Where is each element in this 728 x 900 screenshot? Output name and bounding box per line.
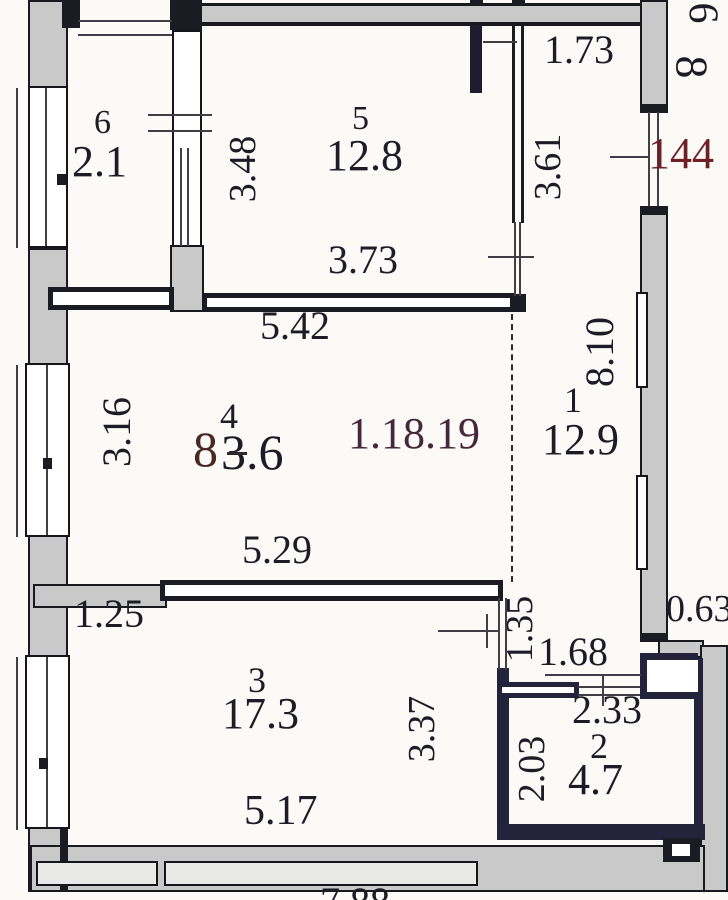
tick-corridor-window [488, 256, 534, 258]
dim-room5-width: 3.73 [328, 240, 398, 280]
dim-room6-wall: 3.48 [224, 126, 262, 212]
dim-left-stub: 1.25 [74, 594, 144, 634]
wall-stub-top-b [512, 0, 525, 5]
dim-corridor: 3.61 [529, 124, 567, 210]
window-corridor-line-b [519, 222, 521, 296]
room6-number: 6 [94, 106, 111, 140]
dim-right-wall: 8.10 [580, 309, 620, 395]
window-room3-mullion [46, 657, 48, 827]
balcony-line-top [16, 88, 18, 248]
door-tick-top [483, 41, 517, 43]
tick-3-48-a [148, 114, 212, 116]
dim-hall-width: 5.42 [260, 306, 330, 346]
column-niche-core [672, 844, 690, 856]
room2-area: 4.7 [568, 758, 623, 802]
wall-niche-corner [640, 653, 698, 699]
wall-corridor-right-line [521, 25, 524, 223]
window-hall-mullion [46, 365, 48, 535]
apartment-number: 144 [648, 132, 714, 176]
dim-right-step: 0.63 [666, 590, 728, 628]
balcony-line-mid [16, 365, 18, 537]
door-panel-right-lower [636, 475, 648, 570]
dim-passage: 1.35 [501, 586, 539, 672]
wall-cap-entry-top [640, 104, 668, 113]
corner-digit-bottom: 8 [669, 56, 715, 79]
wall-corridor-left-line [512, 25, 515, 223]
opening-top-line-b [78, 34, 172, 36]
window-room6-mullion [45, 88, 47, 246]
wall-hall-topleft [48, 287, 174, 310]
window-room3-handle [39, 758, 48, 769]
wall-cap-entry-bottom [640, 206, 668, 215]
door-leaf [470, 25, 482, 93]
window-hall-handle [43, 458, 52, 469]
dim-room3-bottom: 5.17 [244, 790, 318, 832]
date-stamp: 1.18.19 [348, 412, 480, 456]
door-panel-right-upper [636, 292, 648, 388]
dim-bottom-partial: 7.88 [320, 882, 390, 900]
room1-area: 12.9 [542, 418, 619, 462]
dim-hall-window: 3.16 [97, 389, 137, 475]
wall-cap-right-low [640, 633, 668, 642]
tick-1-35-h [438, 630, 500, 632]
window-room6-handle [57, 174, 66, 185]
tick-1-68 [545, 674, 641, 676]
balcony-line-bottom [16, 657, 18, 830]
room6-area: 2.1 [72, 140, 127, 184]
window-corridor-line-a [514, 222, 516, 296]
tick-3-48-b [148, 130, 212, 132]
dim-room2-width: 2.33 [572, 690, 642, 730]
tick-1-35-v [486, 614, 488, 648]
wall-room5-bottom [202, 293, 515, 312]
room3-area: 17.3 [222, 692, 299, 736]
wall-stub-topleft [62, 0, 80, 28]
wall-stub-top-a [470, 0, 483, 5]
total-area-overlay-digit: 8 [193, 424, 218, 474]
window-bottom-left [36, 861, 158, 886]
dim-top-entry: 1.73 [544, 30, 614, 70]
wall-right-long [640, 206, 668, 642]
wall-room2-top [497, 682, 579, 698]
door-room6-line-b [187, 148, 189, 246]
dim-room3-right: 3.37 [403, 686, 441, 772]
dim-niche: 1.68 [538, 632, 608, 672]
wall-room3-top [160, 580, 503, 601]
door-room6-line-a [180, 148, 182, 246]
wall-outer-right-top [640, 0, 668, 112]
dim-room3-top: 5.29 [242, 530, 312, 570]
wall-divider-gray-block [170, 245, 204, 312]
opening-top-line-a [78, 20, 172, 22]
zone-divider-dashed [511, 314, 515, 582]
wall-outer-top [202, 3, 645, 26]
room5-area: 12.8 [326, 134, 403, 178]
dim-room2-depth: 2.03 [513, 726, 551, 812]
floor-plan: 6 2.1 5 12.8 4 8 3.6 1.18.19 1 12.9 3 17… [0, 0, 728, 900]
wall-divider-top-stub [170, 0, 202, 30]
overlay-stroke [227, 452, 247, 455]
tick-entry [610, 156, 650, 158]
corner-digit-top: 6 [682, 3, 724, 24]
window-room6 [28, 86, 68, 248]
